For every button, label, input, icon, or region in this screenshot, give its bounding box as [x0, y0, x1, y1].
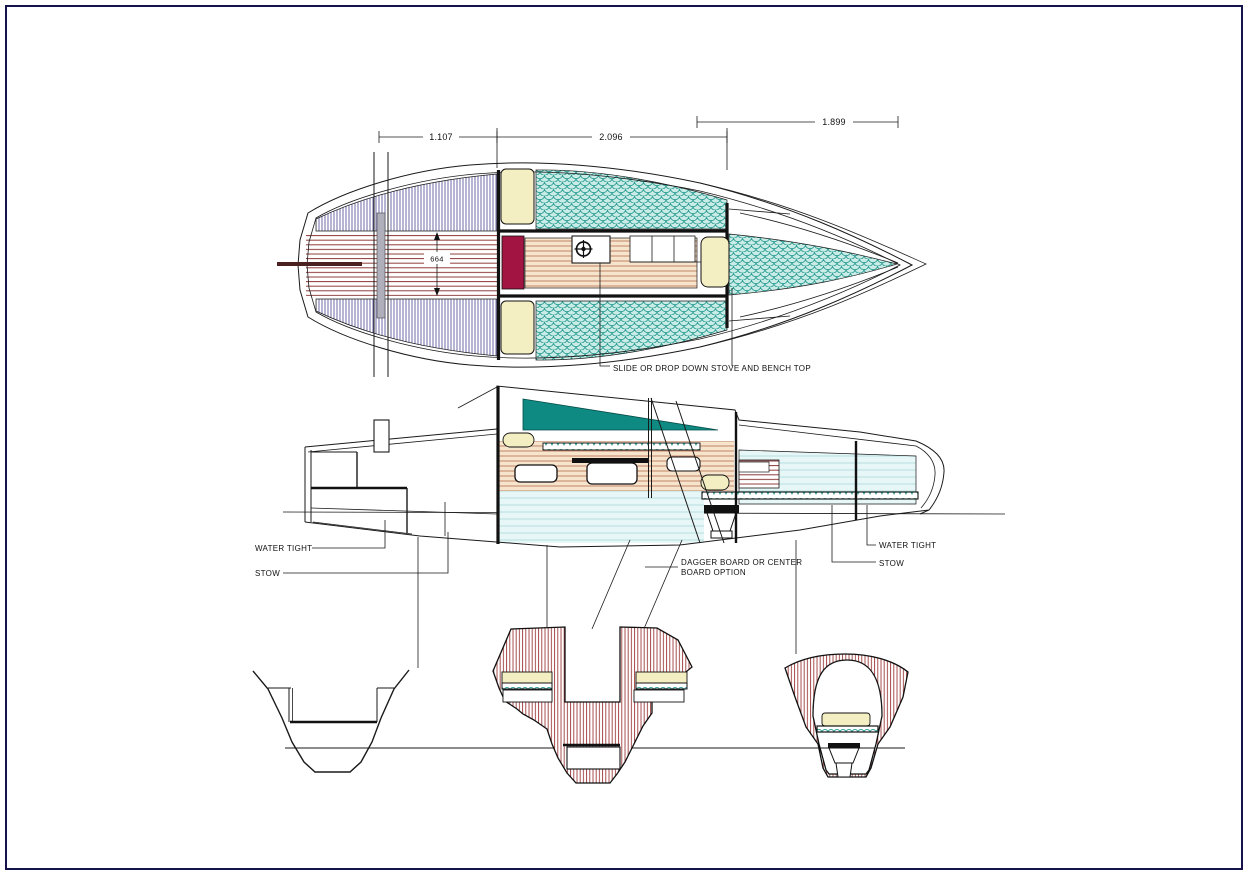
seat-cushion-aft-port: [501, 169, 534, 224]
bench-cushion-forward: [701, 237, 729, 287]
mid-section-notch: [503, 690, 552, 702]
boat-design-drawing: 1.107 2.096 1.899: [0, 0, 1248, 875]
dimension-right: 1.899: [822, 117, 846, 127]
mid-section-notch: [634, 690, 684, 702]
beam-value: 664: [430, 255, 443, 264]
traveler-bar: [377, 213, 385, 318]
drawing-sheet: 1.107 2.096 1.899: [0, 0, 1248, 875]
fwd-berth-strip: [817, 726, 878, 732]
seat-cushion-aft-starboard: [501, 301, 534, 354]
galley-locker-crimson: [502, 236, 524, 289]
forward-berth-strip: [702, 492, 918, 499]
locker-front: [587, 463, 637, 484]
fwd-berth-cushion: [822, 713, 870, 726]
pillow-aft: [503, 433, 534, 447]
dimension-mid: 2.096: [599, 132, 623, 142]
mid-seat-cushion: [636, 672, 687, 683]
table-edge: [572, 458, 648, 463]
bow-locker-door: [739, 462, 769, 472]
dagger-case-box: [567, 747, 620, 769]
dagger-note-line2: BOARD OPTION: [681, 568, 746, 577]
dagger-note-line1: DAGGER BOARD OR CENTER: [681, 558, 802, 567]
dimension-left: 1.107: [429, 132, 453, 142]
stove-note-label: SLIDE OR DROP DOWN STOVE AND BENCH TOP: [613, 364, 811, 373]
bilge-aft: [499, 491, 704, 543]
stow-right-label: STOW: [879, 559, 904, 568]
mid-seat-strip: [502, 683, 552, 689]
water-tight-left-label: WATER TIGHT: [255, 544, 312, 553]
water-tight-right-label: WATER TIGHT: [879, 541, 936, 550]
mid-seat-strip: [636, 683, 687, 689]
stow-left-label: STOW: [255, 569, 280, 578]
mid-seat-cushion: [502, 672, 552, 683]
berth-top-strip: [543, 443, 700, 450]
counter-top: [630, 236, 695, 262]
locker-front: [515, 465, 557, 482]
tiller-head-box: [374, 420, 389, 452]
